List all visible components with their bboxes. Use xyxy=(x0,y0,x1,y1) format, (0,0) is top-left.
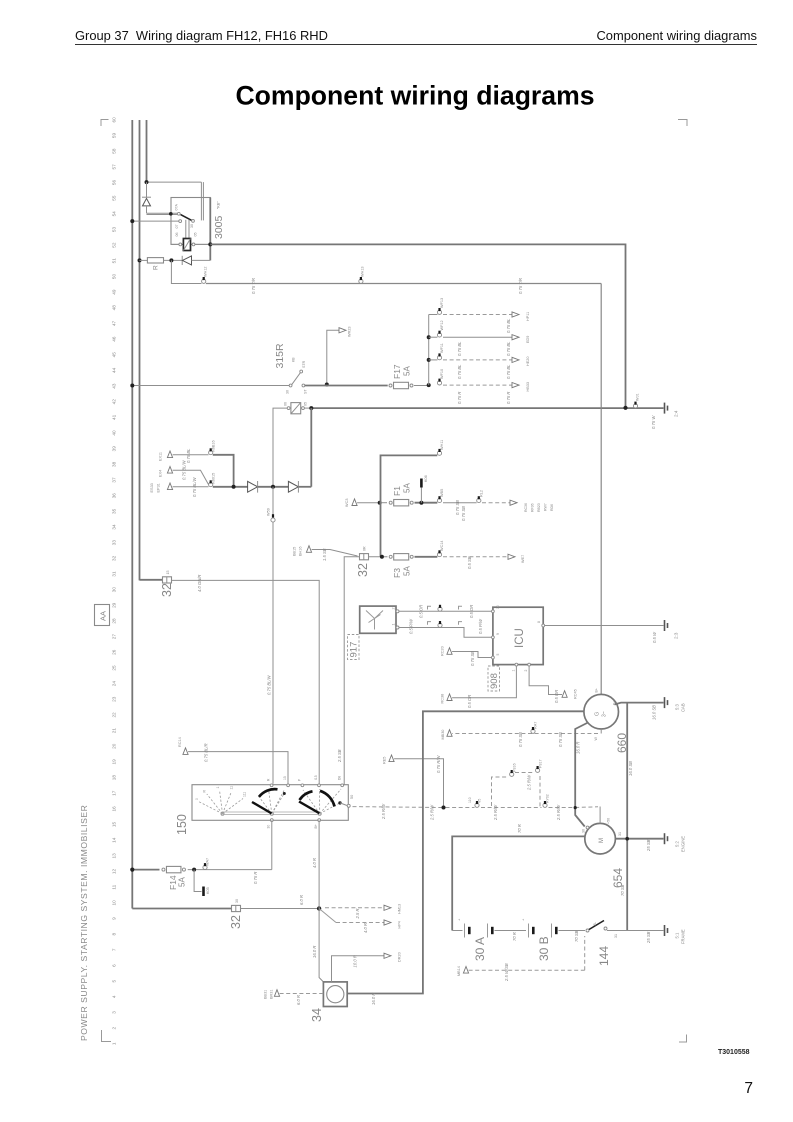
svg-text:70 R: 70 R xyxy=(512,932,517,941)
svg-text:30: 30 xyxy=(190,224,194,228)
svg-text:8: 8 xyxy=(112,932,117,935)
svg-text:21: 21 xyxy=(112,728,117,734)
svg-text:30 A: 30 A xyxy=(473,937,487,961)
svg-text:2: 2 xyxy=(392,608,396,610)
svg-text:5A: 5A xyxy=(403,366,412,376)
svg-text:18: 18 xyxy=(112,775,117,781)
svg-text:32: 32 xyxy=(356,563,370,577)
svg-text:6.0 R: 6.0 R xyxy=(299,895,304,905)
svg-text:1: 1 xyxy=(112,1042,117,1045)
svg-text:51: 51 xyxy=(112,258,117,264)
svg-text:32: 32 xyxy=(112,555,117,561)
svg-text:654: 654 xyxy=(611,868,625,888)
svg-text:9: 9 xyxy=(496,633,500,635)
svg-text:0.5 OR: 0.5 OR xyxy=(467,695,472,708)
svg-text:12: 12 xyxy=(112,869,117,875)
svg-text:8: 8 xyxy=(537,621,541,623)
svg-text:10: 10 xyxy=(496,605,500,609)
svg-text:MB14: MB14 xyxy=(457,966,461,976)
svg-text:07: 07 xyxy=(175,225,179,229)
svg-text:5:2: 5:2 xyxy=(675,841,680,847)
svg-text:3~: 3~ xyxy=(602,711,608,717)
svg-text:N6015: N6015 xyxy=(212,473,216,484)
svg-text:0.75 T/R: 0.75 T/R xyxy=(251,278,256,294)
svg-text:HM13: HM13 xyxy=(398,904,402,914)
svg-text:23: 23 xyxy=(112,696,117,702)
svg-text:06: 06 xyxy=(284,402,288,406)
svg-text:D8: D8 xyxy=(337,776,341,780)
svg-text:2.5 R/W: 2.5 R/W xyxy=(381,803,386,820)
svg-text:15: 15 xyxy=(166,571,170,575)
svg-text:5A: 5A xyxy=(178,877,187,887)
svg-text:0.75 R: 0.75 R xyxy=(506,392,511,404)
svg-text:110: 110 xyxy=(468,797,472,803)
svg-text:1: 1 xyxy=(392,624,396,626)
svg-text:16.0 SB: 16.0 SB xyxy=(628,761,633,776)
svg-text:0.5 P/W: 0.5 P/W xyxy=(478,618,483,634)
svg-text:52: 52 xyxy=(112,242,117,248)
svg-text:0.5 OR: 0.5 OR xyxy=(469,605,474,618)
svg-text:ST: ST xyxy=(304,389,308,394)
svg-text:29: 29 xyxy=(112,602,117,608)
svg-text:36: 36 xyxy=(112,493,117,499)
svg-text:0.75 SB: 0.75 SB xyxy=(518,732,523,747)
svg-text:0.75 BL: 0.75 BL xyxy=(506,364,511,379)
svg-text:2:3: 2:3 xyxy=(674,632,679,639)
svg-text:EX4: EX4 xyxy=(159,470,163,477)
svg-text:0.75 BL: 0.75 BL xyxy=(506,341,511,356)
svg-text:46: 46 xyxy=(112,336,117,342)
svg-text:2: 2 xyxy=(524,670,528,672)
svg-text:BH16: BH16 xyxy=(299,547,303,557)
svg-text:B+: B+ xyxy=(595,688,599,693)
svg-text:WF12: WF12 xyxy=(440,320,444,330)
svg-text:4.0 R: 4.0 R xyxy=(312,858,317,868)
svg-text:Component wiring diagrams: Component wiring diagrams xyxy=(235,81,594,111)
svg-text:28: 28 xyxy=(112,618,117,624)
svg-text:FRAME: FRAME xyxy=(681,929,686,944)
svg-text:5:1: 5:1 xyxy=(675,932,680,938)
svg-text:F917: F917 xyxy=(539,759,543,768)
svg-text:DR20: DR20 xyxy=(398,952,402,962)
svg-text:W: W xyxy=(594,737,598,741)
svg-text:B+: B+ xyxy=(314,824,318,828)
svg-text:70 SB: 70 SB xyxy=(574,930,579,942)
svg-text:16: 16 xyxy=(112,806,117,812)
svg-text:WF13: WF13 xyxy=(440,298,444,308)
svg-text:54: 54 xyxy=(112,211,117,217)
svg-text:WE7: WE7 xyxy=(521,555,525,563)
svg-text:917: 917 xyxy=(349,642,360,658)
svg-text:R: R xyxy=(153,265,160,270)
svg-text:111: 111 xyxy=(243,792,247,797)
svg-text:9: 9 xyxy=(112,917,117,920)
svg-text:WF10: WF10 xyxy=(440,369,444,379)
svg-text:6: 6 xyxy=(112,964,117,967)
svg-text:26: 26 xyxy=(112,649,117,655)
svg-text:32: 32 xyxy=(160,583,174,597)
svg-text:WH12: WH12 xyxy=(204,266,208,277)
svg-text:W59: W59 xyxy=(267,508,271,516)
svg-text:47: 47 xyxy=(112,320,117,326)
svg-text:2.5 R/W: 2.5 R/W xyxy=(430,804,435,821)
svg-text:2.5 R/W: 2.5 R/W xyxy=(493,804,498,821)
svg-text:RC20: RC20 xyxy=(441,646,445,656)
svg-text:5:3: 5:3 xyxy=(675,704,680,710)
svg-text:F14: F14 xyxy=(168,875,178,890)
svg-text:60: 60 xyxy=(112,117,117,123)
svg-text:RD6: RD6 xyxy=(550,504,554,511)
svg-text:16.0 R: 16.0 R xyxy=(312,946,317,958)
svg-text:11: 11 xyxy=(112,884,117,889)
svg-text:30: 30 xyxy=(235,899,239,903)
svg-text:HP4: HP4 xyxy=(398,921,402,928)
svg-text:44: 44 xyxy=(112,367,117,373)
svg-text:F3: F3 xyxy=(392,568,402,578)
svg-text:4: 4 xyxy=(112,995,117,998)
svg-text:I15: I15 xyxy=(314,775,318,780)
svg-text:40: 40 xyxy=(112,430,117,436)
svg-text:0.75 BL/W: 0.75 BL/W xyxy=(192,476,197,497)
svg-text:V5: V5 xyxy=(478,799,482,803)
svg-text:RB23: RB23 xyxy=(537,503,541,512)
svg-text:38: 38 xyxy=(112,461,117,467)
svg-text:ED9: ED9 xyxy=(526,336,530,343)
svg-text:1.5 SB: 1.5 SB xyxy=(322,548,327,561)
svg-text:49: 49 xyxy=(112,289,117,295)
svg-text:0.5 W: 0.5 W xyxy=(652,631,657,643)
svg-text:39: 39 xyxy=(112,446,117,452)
svg-text:50: 50 xyxy=(350,795,354,799)
svg-text:48: 48 xyxy=(112,305,117,311)
svg-text:G: G xyxy=(595,712,601,716)
svg-text:41: 41 xyxy=(112,414,117,420)
svg-text:150: 150 xyxy=(175,814,189,835)
svg-text:27: 27 xyxy=(112,634,117,640)
svg-text:BB31: BB31 xyxy=(264,990,268,999)
svg-text:2.5 R/W: 2.5 R/W xyxy=(556,804,561,821)
svg-text:0.75 R/W: 0.75 R/W xyxy=(436,754,441,773)
svg-text:05: 05 xyxy=(194,233,198,237)
svg-text:WH13: WH13 xyxy=(361,266,365,277)
svg-text:STR: STR xyxy=(302,360,306,368)
svg-text:+50: +50 xyxy=(607,818,611,824)
svg-text:0: 0 xyxy=(195,798,199,800)
svg-text:RL2: RL2 xyxy=(480,490,484,497)
svg-text:ICU: ICU xyxy=(514,628,526,648)
svg-text:5: 5 xyxy=(112,979,117,982)
svg-text:10.0 R: 10.0 R xyxy=(353,955,358,967)
svg-text:0.75 SB: 0.75 SB xyxy=(461,506,466,521)
svg-text:WA7: WA7 xyxy=(206,858,210,866)
svg-text:34: 34 xyxy=(112,524,117,530)
svg-text:58: 58 xyxy=(112,148,117,154)
svg-text:4.0 R: 4.0 R xyxy=(363,923,368,933)
svg-text:MB30: MB30 xyxy=(441,730,445,740)
svg-text:0.75 BL/W: 0.75 BL/W xyxy=(182,459,187,480)
svg-text:0.75 BL: 0.75 BL xyxy=(457,364,462,379)
svg-text:F916: F916 xyxy=(513,763,517,772)
svg-text:K05: K05 xyxy=(206,887,210,894)
svg-text:33: 33 xyxy=(112,540,117,546)
svg-text:2: 2 xyxy=(112,1026,117,1029)
svg-text:0.5 P/W: 0.5 P/W xyxy=(409,618,414,634)
svg-text:POWER SUPPLY. STARTING SYSTEM.: POWER SUPPLY. STARTING SYSTEM. IMMOBILIS… xyxy=(79,805,89,1041)
svg-text:5: 5 xyxy=(496,654,500,656)
svg-text:45: 45 xyxy=(112,352,117,358)
svg-text:WJ1: WJ1 xyxy=(636,393,640,401)
svg-text:RC45: RC45 xyxy=(574,689,578,699)
svg-text:30 B: 30 B xyxy=(537,936,551,961)
svg-text:16.0 R: 16.0 R xyxy=(576,742,581,754)
svg-text:35: 35 xyxy=(112,508,117,514)
svg-text:6.0 R: 6.0 R xyxy=(296,995,301,1005)
svg-text:WH11: WH11 xyxy=(440,440,444,450)
svg-text:0.75 BL/R: 0.75 BL/R xyxy=(204,743,209,762)
svg-text:0.5 OR: 0.5 OR xyxy=(554,690,559,703)
svg-text:32: 32 xyxy=(229,915,243,929)
svg-text:30: 30 xyxy=(267,825,271,829)
svg-text:0.75 BL/W: 0.75 BL/W xyxy=(267,674,272,695)
svg-text:50: 50 xyxy=(112,273,117,279)
svg-text:HP11: HP11 xyxy=(526,312,530,321)
svg-text:1: 1 xyxy=(216,787,220,789)
svg-text:T3010558: T3010558 xyxy=(718,1049,750,1056)
svg-text:17: 17 xyxy=(112,790,117,796)
svg-text:WB5: WB5 xyxy=(440,489,444,497)
svg-text:0.75 R: 0.75 R xyxy=(253,872,258,884)
svg-text:315R: 315R xyxy=(274,343,286,369)
svg-text:13: 13 xyxy=(112,853,117,859)
svg-text:M: M xyxy=(599,838,605,843)
svg-text:43: 43 xyxy=(112,383,117,389)
svg-text:07A: 07A xyxy=(175,204,179,211)
svg-text:5A: 5A xyxy=(403,483,412,493)
svg-text:2.5 R/W: 2.5 R/W xyxy=(527,774,532,791)
svg-text:HE20: HE20 xyxy=(526,357,530,367)
svg-text:15: 15 xyxy=(283,776,287,780)
svg-text:20: 20 xyxy=(112,743,117,749)
svg-text:25 SB: 25 SB xyxy=(646,839,651,852)
svg-text:RF36: RF36 xyxy=(531,503,535,512)
svg-text:RY02: RY02 xyxy=(546,794,550,803)
svg-text:2.5 SB: 2.5 SB xyxy=(337,749,342,763)
svg-text:0.5 OR: 0.5 OR xyxy=(419,605,424,618)
svg-text:Component wiring diagrams: Component wiring diagrams xyxy=(597,28,758,43)
svg-text:2:4: 2:4 xyxy=(674,410,679,417)
svg-text:16.0 SB: 16.0 SB xyxy=(652,705,657,720)
svg-text:57: 57 xyxy=(112,164,117,170)
svg-text:22: 22 xyxy=(112,712,117,718)
svg-text:WC14: WC14 xyxy=(440,540,444,551)
svg-text:2.5 R: 2.5 R xyxy=(355,908,360,919)
svg-text:144: 144 xyxy=(597,946,611,966)
svg-text:24: 24 xyxy=(112,681,117,687)
svg-text:42: 42 xyxy=(112,399,117,405)
svg-text:0.75 BL: 0.75 BL xyxy=(506,318,511,333)
svg-text:KB: KB xyxy=(292,357,296,362)
svg-text:06: 06 xyxy=(175,233,179,237)
svg-text:RC14: RC14 xyxy=(178,737,182,747)
svg-text:CAB: CAB xyxy=(681,703,686,712)
svg-text:EX11: EX11 xyxy=(159,452,163,461)
svg-text:RC38: RC38 xyxy=(441,694,445,704)
svg-text:53: 53 xyxy=(112,226,117,232)
svg-text:37: 37 xyxy=(112,477,117,483)
svg-text:0R: 0R xyxy=(363,546,367,551)
svg-text:14: 14 xyxy=(112,837,117,843)
svg-text:31: 31 xyxy=(618,832,622,836)
svg-text:31: 31 xyxy=(112,571,117,577)
svg-text:2.5 W/SB: 2.5 W/SB xyxy=(504,963,509,982)
svg-text:0.75 SB: 0.75 SB xyxy=(455,500,460,515)
svg-text:0.75 BL: 0.75 BL xyxy=(186,448,191,463)
svg-text:15: 15 xyxy=(112,822,117,828)
svg-text:0.75 T/R: 0.75 T/R xyxy=(518,278,523,294)
svg-text:7: 7 xyxy=(112,948,117,951)
svg-text:K06: K06 xyxy=(424,475,428,482)
svg-text:0.75 SB: 0.75 SB xyxy=(470,651,475,666)
svg-text:ENGINE: ENGINE xyxy=(681,836,686,852)
svg-text:RC36: RC36 xyxy=(524,503,528,512)
svg-text:EP31: EP31 xyxy=(157,483,161,492)
svg-text:WC3: WC3 xyxy=(345,499,349,507)
svg-text:0.75 W: 0.75 W xyxy=(651,415,656,429)
svg-text:25: 25 xyxy=(112,665,117,671)
svg-text:4.0 GN/R: 4.0 GN/R xyxy=(197,575,202,592)
svg-text:RW7: RW7 xyxy=(544,503,548,511)
svg-text:56: 56 xyxy=(112,180,117,186)
svg-text:59: 59 xyxy=(112,133,117,139)
svg-text:ES33: ES33 xyxy=(150,483,154,492)
svg-text:“KB”: “KB” xyxy=(217,201,221,209)
svg-text:30: 30 xyxy=(112,587,117,593)
svg-text:70 R: 70 R xyxy=(517,824,522,833)
svg-text:WF11: WF11 xyxy=(440,343,444,353)
svg-text:0.75 SB: 0.75 SB xyxy=(558,732,563,747)
svg-text:31: 31 xyxy=(614,934,618,938)
svg-text:908: 908 xyxy=(489,673,500,689)
svg-text:30: 30 xyxy=(582,829,586,833)
svg-text:34: 34 xyxy=(310,1008,324,1022)
svg-text:19: 19 xyxy=(112,759,117,765)
svg-text:3: 3 xyxy=(112,1011,117,1014)
svg-text:5A: 5A xyxy=(403,566,412,576)
svg-text:AA: AA xyxy=(99,611,108,621)
svg-text:F17: F17 xyxy=(392,364,402,379)
svg-text:05: 05 xyxy=(304,402,308,406)
svg-text:F1: F1 xyxy=(392,486,402,496)
svg-text:WR23: WR23 xyxy=(348,326,352,337)
svg-text:7: 7 xyxy=(744,1080,753,1097)
svg-text:10: 10 xyxy=(112,900,117,906)
svg-text:RA7: RA7 xyxy=(534,722,538,729)
svg-text:0.75 R: 0.75 R xyxy=(457,392,462,404)
svg-text:BR31: BR31 xyxy=(270,990,274,1000)
svg-text:55: 55 xyxy=(112,195,117,201)
svg-text:30: 30 xyxy=(286,390,290,394)
svg-text:11: 11 xyxy=(230,786,234,790)
svg-text:HB33: HB33 xyxy=(526,382,530,392)
svg-text:1: 1 xyxy=(512,670,516,672)
svg-text:N6B16: N6B16 xyxy=(212,440,216,452)
svg-text:RE5: RE5 xyxy=(383,757,387,764)
svg-text:16.0 R: 16.0 R xyxy=(371,993,376,1005)
svg-text:Group 37 Wiring diagram FH12,: Group 37 Wiring diagram FH12, FH16 RHD xyxy=(75,28,328,43)
svg-text:0.5 SB: 0.5 SB xyxy=(467,556,472,569)
svg-text:25 SB: 25 SB xyxy=(646,931,651,944)
svg-text:BB15: BB15 xyxy=(293,547,297,556)
svg-text:0.75 BL: 0.75 BL xyxy=(457,341,462,356)
svg-text:3005: 3005 xyxy=(213,215,225,239)
